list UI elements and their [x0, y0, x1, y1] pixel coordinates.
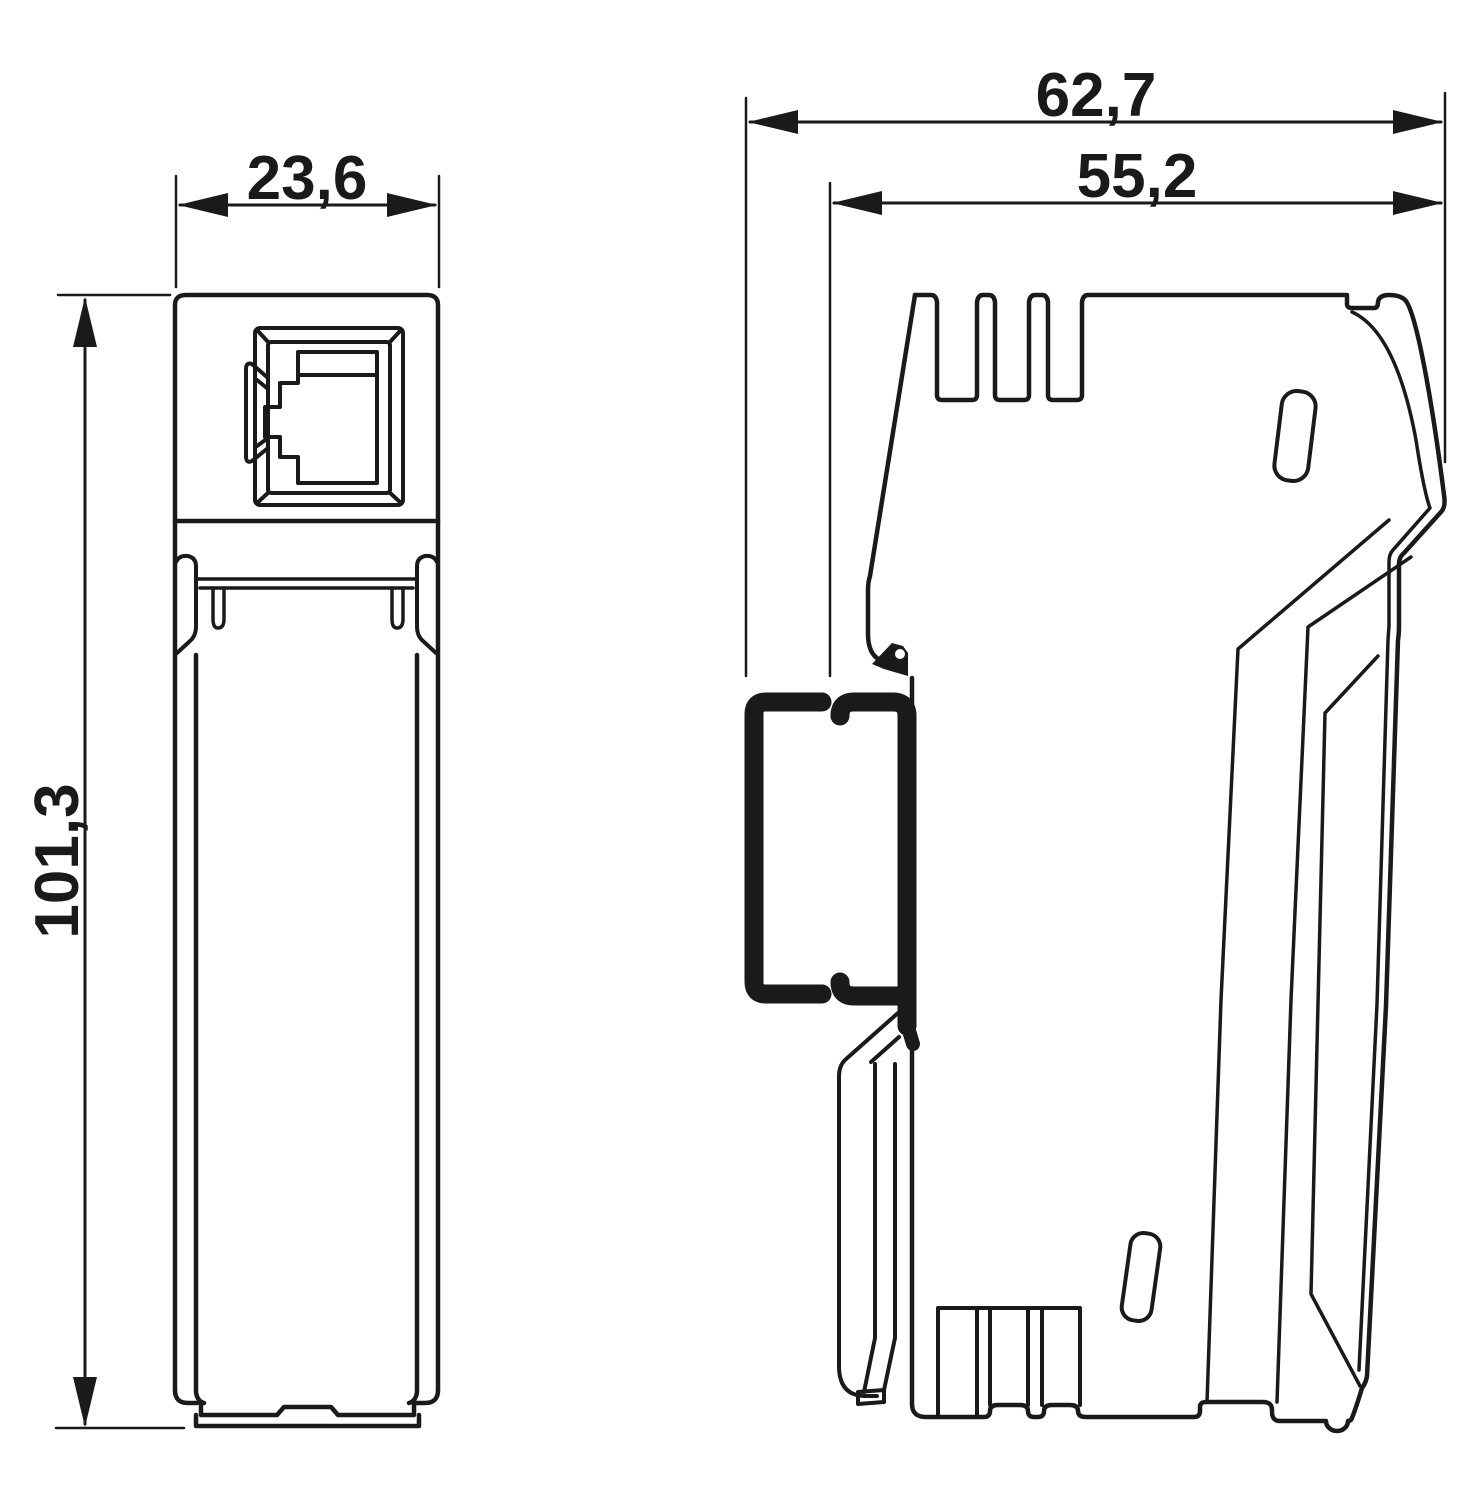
arrow-left-icon: [178, 193, 228, 217]
right-pin: [392, 588, 403, 628]
side-total-depth-label: 62,7: [1036, 61, 1157, 130]
arrow-up-icon: [73, 297, 97, 347]
release-latch: [839, 1013, 899, 1404]
hook-pivot: [895, 649, 905, 659]
rj45-outer-frame: [255, 328, 403, 505]
rail-pocket-foot: [907, 1024, 913, 1044]
drawing-canvas: 23,6 101,3: [0, 0, 1477, 1500]
left-pin: [213, 588, 224, 628]
front-width-dimension: 23,6: [176, 144, 439, 287]
arrow-down-icon: [73, 1377, 97, 1427]
front-cover-seams: [1207, 312, 1430, 1402]
side-rear-edge: [868, 295, 915, 660]
bottom-ribs: [938, 1308, 1080, 1415]
rj45-opening: [265, 352, 377, 483]
front-height-label: 101,3: [23, 783, 92, 938]
arrow-left-icon: [832, 191, 882, 215]
hook-tip: [872, 643, 908, 676]
front-height-dimension: 101,3: [23, 295, 184, 1428]
upper-vent-slot: [1273, 389, 1318, 482]
rail-hook: [872, 643, 908, 676]
side-view: 62,7 55,2: [746, 61, 1445, 1431]
rail-pocket: [840, 702, 907, 1026]
arrow-right-icon: [1393, 191, 1443, 215]
front-width-label: 23,6: [247, 144, 368, 213]
left-flange: [176, 556, 196, 653]
din-rail-section: [754, 702, 822, 994]
arrow-right-icon: [1393, 110, 1443, 134]
din-rail: [754, 702, 913, 1044]
rj45-bevel-lines: [257, 330, 401, 503]
rj45-inner-frame: [268, 342, 390, 493]
arrow-right-icon: [387, 193, 437, 217]
lower-vent-slot: [1120, 1231, 1162, 1322]
vent-slots: [1120, 389, 1317, 1322]
dimensional-drawing: 23,6 101,3: [0, 0, 1477, 1500]
right-flange: [417, 556, 437, 653]
shelf-lines: [198, 579, 415, 588]
rj45-jack: [246, 328, 403, 505]
side-housing-depth-label: 55,2: [1077, 142, 1198, 211]
front-view: 23,6 101,3: [23, 144, 439, 1428]
front-mid-section: [176, 556, 437, 653]
arrow-left-icon: [748, 110, 798, 134]
front-housing-outline: [175, 295, 438, 1426]
